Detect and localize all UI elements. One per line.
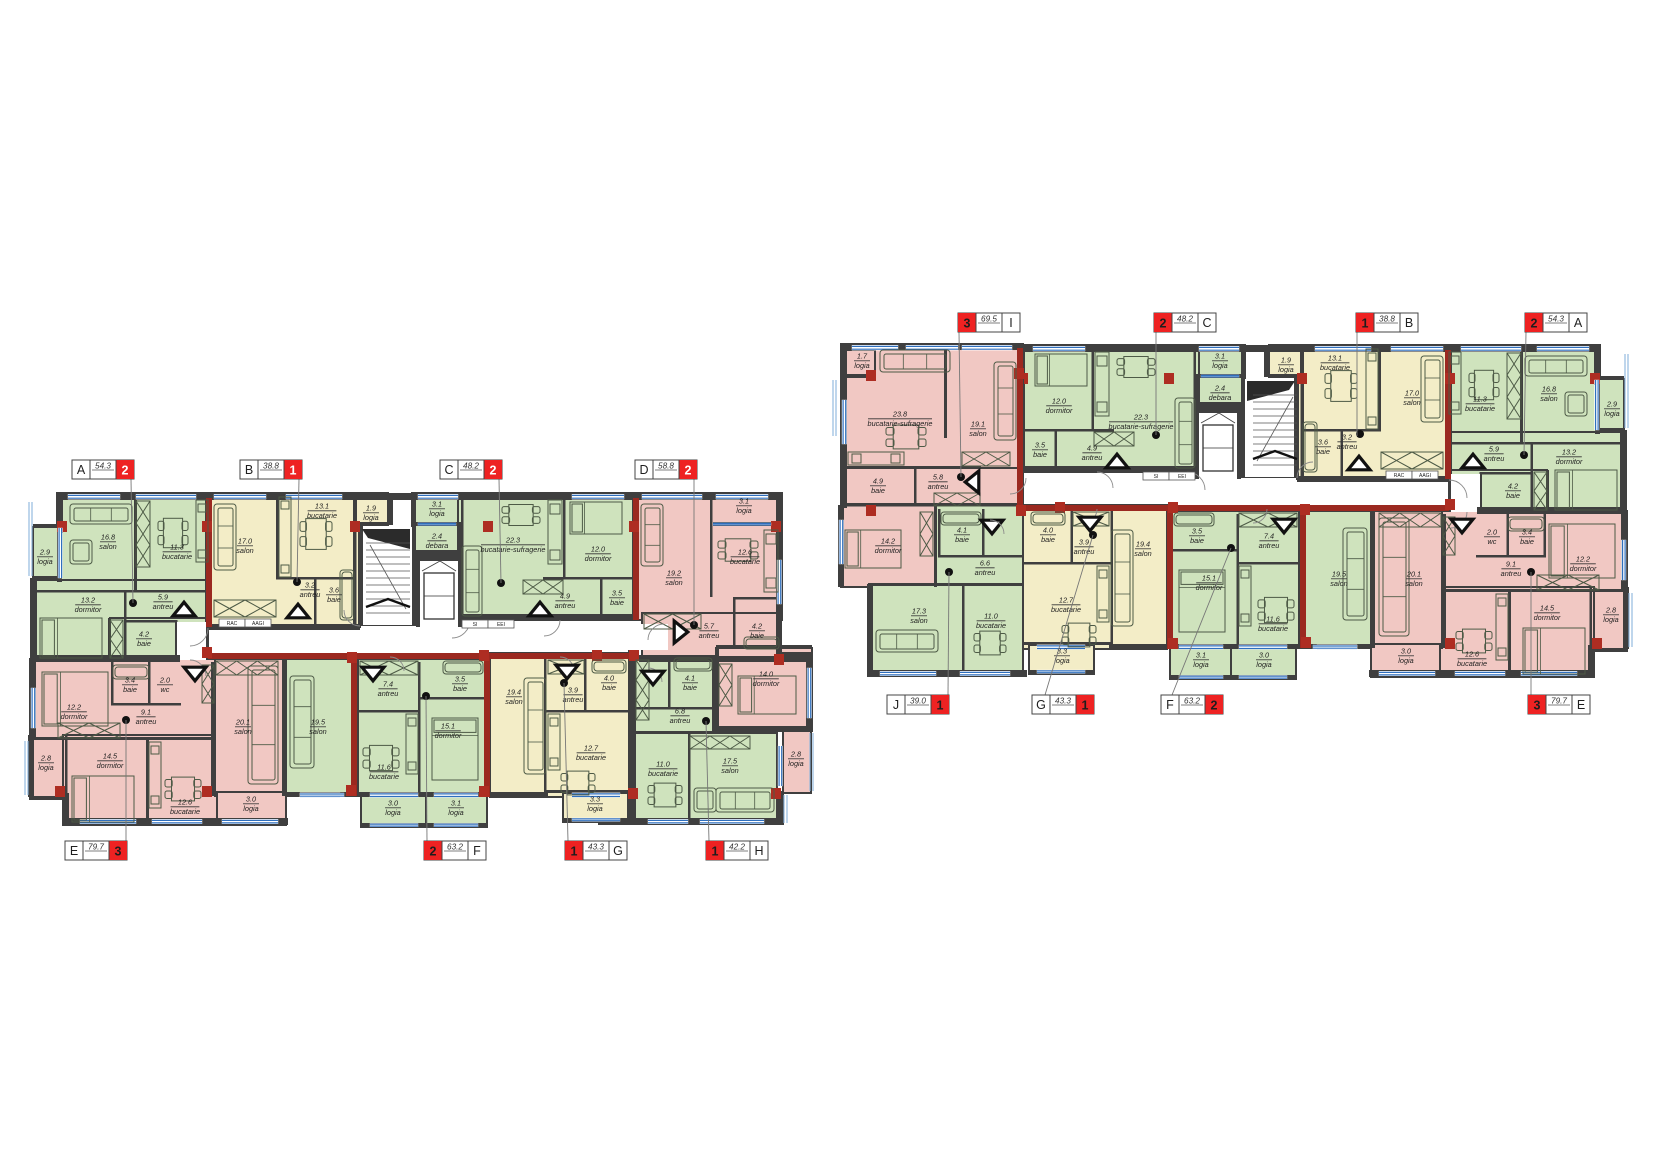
svg-text:11.3: 11.3 bbox=[1473, 395, 1487, 404]
svg-text:RAC: RAC bbox=[1394, 473, 1405, 479]
svg-text:3.0: 3.0 bbox=[388, 799, 398, 808]
svg-text:dormitor: dormitor bbox=[97, 761, 124, 770]
svg-text:3.4: 3.4 bbox=[1522, 528, 1532, 537]
svg-text:22.3: 22.3 bbox=[505, 536, 520, 545]
svg-text:79.7: 79.7 bbox=[1551, 697, 1567, 706]
svg-text:5.9: 5.9 bbox=[1489, 445, 1499, 454]
svg-text:bucatarie: bucatarie bbox=[1465, 404, 1495, 413]
svg-text:11.0: 11.0 bbox=[984, 612, 998, 621]
svg-text:13.2: 13.2 bbox=[1562, 448, 1576, 457]
svg-text:dormitor: dormitor bbox=[1046, 406, 1073, 415]
svg-text:19.4: 19.4 bbox=[1136, 540, 1150, 549]
svg-text:salon: salon bbox=[1134, 549, 1151, 558]
svg-text:logia: logia bbox=[1604, 409, 1619, 418]
svg-text:3.3: 3.3 bbox=[590, 795, 600, 804]
svg-text:salon: salon bbox=[1405, 579, 1422, 588]
svg-text:2: 2 bbox=[122, 464, 129, 478]
svg-text:baie: baie bbox=[871, 486, 885, 495]
svg-text:2: 2 bbox=[1211, 699, 1218, 713]
svg-text:4.9: 4.9 bbox=[560, 592, 570, 601]
svg-text:bucatarie-sufragerie: bucatarie-sufragerie bbox=[481, 545, 546, 554]
svg-text:baie: baie bbox=[1190, 536, 1204, 545]
svg-text:20.1: 20.1 bbox=[235, 718, 250, 727]
svg-text:12.6: 12.6 bbox=[738, 548, 753, 557]
svg-text:baie: baie bbox=[1041, 535, 1055, 544]
svg-text:23.8: 23.8 bbox=[892, 410, 908, 419]
svg-text:42.2: 42.2 bbox=[729, 843, 745, 852]
svg-text:13.1: 13.1 bbox=[315, 502, 329, 511]
svg-text:3.0: 3.0 bbox=[246, 795, 256, 804]
svg-text:antreu: antreu bbox=[136, 717, 157, 726]
svg-text:12.2: 12.2 bbox=[67, 703, 81, 712]
svg-text:4.0: 4.0 bbox=[1043, 526, 1053, 535]
svg-text:2.8: 2.8 bbox=[40, 754, 52, 763]
svg-text:salon: salon bbox=[665, 578, 682, 587]
svg-text:logia: logia bbox=[385, 808, 400, 817]
svg-text:antreu: antreu bbox=[1082, 453, 1103, 462]
svg-text:logia: logia bbox=[1278, 365, 1293, 374]
svg-text:16.8: 16.8 bbox=[101, 533, 116, 542]
svg-text:baie: baie bbox=[750, 631, 764, 640]
svg-text:G: G bbox=[613, 844, 623, 858]
svg-text:48.2: 48.2 bbox=[1177, 315, 1193, 324]
svg-text:7.4: 7.4 bbox=[383, 680, 393, 689]
svg-text:dormitor: dormitor bbox=[875, 546, 902, 555]
svg-text:14.5: 14.5 bbox=[1540, 604, 1555, 613]
svg-text:3.0: 3.0 bbox=[1401, 647, 1411, 656]
svg-text:logia: logia bbox=[587, 804, 602, 813]
svg-text:baie: baie bbox=[1033, 450, 1047, 459]
svg-text:3.1: 3.1 bbox=[1215, 352, 1225, 361]
svg-text:debara: debara bbox=[1209, 393, 1232, 402]
svg-text:bucatarie: bucatarie bbox=[1457, 659, 1487, 668]
svg-text:bucatarie: bucatarie bbox=[648, 769, 678, 778]
svg-text:antreu: antreu bbox=[555, 601, 576, 610]
svg-text:wc: wc bbox=[161, 685, 170, 694]
svg-text:dormitor: dormitor bbox=[1196, 583, 1223, 592]
svg-text:SI: SI bbox=[1154, 474, 1159, 480]
svg-text:F: F bbox=[1166, 698, 1174, 712]
svg-text:38.8: 38.8 bbox=[1379, 315, 1395, 324]
svg-text:1: 1 bbox=[571, 845, 578, 859]
svg-text:antreu: antreu bbox=[928, 482, 949, 491]
svg-text:3.1: 3.1 bbox=[739, 497, 749, 506]
svg-text:baie: baie bbox=[1520, 537, 1534, 546]
svg-text:baie: baie bbox=[610, 598, 624, 607]
svg-text:4.2: 4.2 bbox=[1508, 482, 1518, 491]
svg-text:3.2: 3.2 bbox=[1342, 433, 1352, 442]
svg-text:19.4: 19.4 bbox=[507, 688, 521, 697]
svg-text:3.1: 3.1 bbox=[432, 500, 442, 509]
svg-text:4.2: 4.2 bbox=[752, 622, 762, 631]
svg-text:F: F bbox=[473, 844, 481, 858]
svg-text:12.7: 12.7 bbox=[584, 744, 599, 753]
svg-text:antreu: antreu bbox=[563, 695, 584, 704]
svg-text:2.0: 2.0 bbox=[1486, 528, 1497, 537]
svg-text:4.1: 4.1 bbox=[957, 526, 967, 535]
svg-text:1.7: 1.7 bbox=[857, 352, 868, 361]
svg-text:dormitor: dormitor bbox=[61, 712, 88, 721]
svg-text:salon: salon bbox=[234, 727, 251, 736]
svg-text:salon: salon bbox=[505, 697, 522, 706]
svg-text:17.3: 17.3 bbox=[912, 607, 926, 616]
svg-text:3.0: 3.0 bbox=[1259, 651, 1269, 660]
svg-text:3.5: 3.5 bbox=[1192, 527, 1203, 536]
svg-text:1.9: 1.9 bbox=[366, 504, 376, 513]
svg-text:3.2: 3.2 bbox=[305, 581, 315, 590]
svg-text:4.9: 4.9 bbox=[873, 477, 883, 486]
svg-text:J: J bbox=[893, 698, 899, 712]
svg-text:2: 2 bbox=[685, 464, 692, 478]
svg-text:salon: salon bbox=[910, 616, 927, 625]
svg-text:63.2: 63.2 bbox=[1184, 697, 1200, 706]
svg-text:logia: logia bbox=[1603, 615, 1618, 624]
svg-text:19.5: 19.5 bbox=[1332, 570, 1347, 579]
svg-text:antreu: antreu bbox=[699, 631, 720, 640]
svg-text:EEI: EEI bbox=[497, 622, 505, 628]
svg-text:dormitor: dormitor bbox=[75, 605, 102, 614]
svg-text:baie: baie bbox=[1316, 447, 1330, 456]
svg-text:2: 2 bbox=[1531, 317, 1538, 331]
svg-text:baie: baie bbox=[1506, 491, 1520, 500]
svg-text:dormitor: dormitor bbox=[1534, 613, 1561, 622]
svg-text:A: A bbox=[77, 463, 86, 477]
svg-text:salon: salon bbox=[969, 429, 986, 438]
svg-text:12.6: 12.6 bbox=[178, 798, 193, 807]
svg-text:6.6: 6.6 bbox=[980, 559, 991, 568]
svg-text:salon: salon bbox=[236, 546, 253, 555]
svg-text:bucatarie: bucatarie bbox=[1051, 605, 1081, 614]
svg-text:logia: logia bbox=[788, 759, 803, 768]
svg-text:1: 1 bbox=[937, 699, 944, 713]
svg-text:dormitor: dormitor bbox=[1570, 564, 1597, 573]
svg-text:4.9: 4.9 bbox=[1087, 444, 1097, 453]
svg-text:15.1: 15.1 bbox=[441, 722, 455, 731]
svg-text:17.0: 17.0 bbox=[1405, 389, 1419, 398]
svg-text:antreu: antreu bbox=[300, 590, 321, 599]
svg-text:5.7: 5.7 bbox=[704, 622, 715, 631]
svg-text:5.9: 5.9 bbox=[158, 593, 168, 602]
svg-text:69.5: 69.5 bbox=[981, 315, 997, 324]
svg-text:17.5: 17.5 bbox=[723, 757, 738, 766]
svg-text:RAC: RAC bbox=[227, 621, 238, 627]
svg-text:A: A bbox=[1574, 316, 1583, 330]
svg-text:3.9: 3.9 bbox=[1079, 538, 1089, 547]
svg-text:54.3: 54.3 bbox=[1548, 315, 1564, 324]
svg-text:logia: logia bbox=[37, 557, 52, 566]
svg-text:2.8: 2.8 bbox=[1605, 606, 1617, 615]
svg-text:B: B bbox=[245, 463, 253, 477]
svg-text:E: E bbox=[1577, 698, 1585, 712]
svg-text:salon: salon bbox=[1403, 398, 1420, 407]
svg-text:logia: logia bbox=[429, 509, 444, 518]
svg-text:3.5: 3.5 bbox=[612, 589, 623, 598]
svg-text:4.0: 4.0 bbox=[604, 674, 614, 683]
svg-text:17.0: 17.0 bbox=[238, 537, 252, 546]
svg-text:salon: salon bbox=[721, 766, 738, 775]
svg-text:2: 2 bbox=[1160, 317, 1167, 331]
svg-text:4.1: 4.1 bbox=[685, 674, 695, 683]
svg-text:2.9: 2.9 bbox=[1606, 400, 1617, 409]
svg-text:2: 2 bbox=[430, 845, 437, 859]
svg-text:3.1: 3.1 bbox=[1196, 651, 1206, 660]
svg-text:11.6: 11.6 bbox=[377, 763, 392, 772]
svg-text:3: 3 bbox=[1534, 699, 1541, 713]
svg-text:12.2: 12.2 bbox=[1576, 555, 1590, 564]
svg-text:I: I bbox=[1009, 316, 1012, 330]
svg-text:79.7: 79.7 bbox=[88, 843, 104, 852]
svg-text:3.5: 3.5 bbox=[455, 675, 466, 684]
svg-text:logia: logia bbox=[363, 513, 378, 522]
svg-text:bucatarie: bucatarie bbox=[307, 511, 337, 520]
svg-text:logia: logia bbox=[243, 804, 258, 813]
svg-text:dormitor: dormitor bbox=[435, 731, 462, 740]
svg-text:14.2: 14.2 bbox=[881, 537, 895, 546]
svg-text:2.4: 2.4 bbox=[431, 532, 442, 541]
svg-text:baie: baie bbox=[602, 683, 616, 692]
svg-text:1: 1 bbox=[290, 464, 297, 478]
svg-text:2.0: 2.0 bbox=[159, 676, 170, 685]
svg-text:EEI: EEI bbox=[1178, 474, 1186, 480]
svg-text:bucatarie-sufragerie: bucatarie-sufragerie bbox=[868, 419, 933, 428]
svg-text:22.3: 22.3 bbox=[1133, 413, 1148, 422]
svg-text:bucatarie-sufragerie: bucatarie-sufragerie bbox=[1109, 422, 1174, 431]
svg-text:3: 3 bbox=[964, 317, 971, 331]
svg-text:3.6: 3.6 bbox=[329, 586, 340, 595]
svg-text:12.7: 12.7 bbox=[1059, 596, 1074, 605]
svg-text:43.3: 43.3 bbox=[588, 843, 604, 852]
svg-text:antreu: antreu bbox=[975, 568, 996, 577]
svg-text:debara: debara bbox=[426, 541, 449, 550]
svg-text:9.1: 9.1 bbox=[1506, 560, 1516, 569]
svg-text:logia: logia bbox=[1398, 656, 1413, 665]
svg-text:15.1: 15.1 bbox=[1202, 574, 1216, 583]
svg-text:1: 1 bbox=[1362, 317, 1369, 331]
svg-text:48.2: 48.2 bbox=[463, 462, 479, 471]
svg-text:bucatarie: bucatarie bbox=[1320, 363, 1350, 372]
svg-text:bucatarie: bucatarie bbox=[976, 621, 1006, 630]
svg-text:C: C bbox=[1202, 316, 1211, 330]
svg-text:16.8: 16.8 bbox=[1542, 385, 1557, 394]
svg-text:12.0: 12.0 bbox=[1052, 397, 1066, 406]
svg-text:6.8: 6.8 bbox=[675, 707, 686, 716]
svg-text:bucatarie: bucatarie bbox=[170, 807, 200, 816]
svg-text:antreu: antreu bbox=[1074, 547, 1095, 556]
svg-text:19.5: 19.5 bbox=[311, 718, 326, 727]
svg-text:wc: wc bbox=[1488, 537, 1497, 546]
svg-text:bucatarie: bucatarie bbox=[369, 772, 399, 781]
svg-text:antreu: antreu bbox=[1484, 454, 1505, 463]
svg-text:AAGI: AAGI bbox=[252, 621, 264, 627]
svg-text:antreu: antreu bbox=[1337, 442, 1358, 451]
svg-text:63.2: 63.2 bbox=[447, 843, 463, 852]
svg-text:19.1: 19.1 bbox=[971, 420, 985, 429]
svg-text:salon: salon bbox=[99, 542, 116, 551]
svg-text:1: 1 bbox=[712, 845, 719, 859]
svg-text:2.4: 2.4 bbox=[1214, 384, 1225, 393]
svg-text:bucatarie: bucatarie bbox=[1258, 624, 1288, 633]
svg-text:5.8: 5.8 bbox=[933, 473, 944, 482]
svg-text:E: E bbox=[70, 844, 78, 858]
svg-text:11.6: 11.6 bbox=[1266, 615, 1281, 624]
svg-text:antreu: antreu bbox=[153, 602, 174, 611]
svg-text:G: G bbox=[1036, 698, 1046, 712]
svg-text:bucatarie: bucatarie bbox=[576, 753, 606, 762]
svg-text:logia: logia bbox=[1212, 361, 1227, 370]
svg-text:9.1: 9.1 bbox=[141, 708, 151, 717]
svg-text:54.3: 54.3 bbox=[95, 462, 111, 471]
svg-text:43.3: 43.3 bbox=[1055, 697, 1071, 706]
svg-text:3.6: 3.6 bbox=[1318, 438, 1329, 447]
svg-text:logia: logia bbox=[38, 763, 53, 772]
svg-text:D: D bbox=[639, 463, 648, 477]
svg-text:antreu: antreu bbox=[1501, 569, 1522, 578]
svg-text:20.1: 20.1 bbox=[1406, 570, 1421, 579]
svg-text:bucatarie: bucatarie bbox=[730, 557, 760, 566]
svg-text:logia: logia bbox=[854, 361, 869, 370]
svg-text:baie: baie bbox=[955, 535, 969, 544]
svg-text:salon: salon bbox=[1330, 579, 1347, 588]
svg-text:logia: logia bbox=[1193, 660, 1208, 669]
svg-text:logia: logia bbox=[448, 808, 463, 817]
svg-text:bucatarie: bucatarie bbox=[162, 552, 192, 561]
svg-text:1.9: 1.9 bbox=[1281, 356, 1291, 365]
svg-text:baie: baie bbox=[137, 639, 151, 648]
svg-text:2.9: 2.9 bbox=[39, 548, 50, 557]
svg-text:dormitor: dormitor bbox=[753, 679, 780, 688]
svg-text:C: C bbox=[444, 463, 453, 477]
svg-text:14.5: 14.5 bbox=[103, 752, 118, 761]
svg-text:antreu: antreu bbox=[1259, 541, 1280, 550]
svg-text:logia: logia bbox=[736, 506, 751, 515]
svg-text:B: B bbox=[1405, 316, 1413, 330]
svg-text:39.0: 39.0 bbox=[910, 697, 926, 706]
svg-text:2: 2 bbox=[490, 464, 497, 478]
svg-text:3.1: 3.1 bbox=[451, 799, 461, 808]
svg-text:12.0: 12.0 bbox=[591, 545, 605, 554]
svg-text:salon: salon bbox=[309, 727, 326, 736]
svg-text:baie: baie bbox=[327, 595, 341, 604]
svg-text:1: 1 bbox=[1082, 699, 1089, 713]
svg-text:dormitor: dormitor bbox=[1556, 457, 1583, 466]
svg-text:logia: logia bbox=[1256, 660, 1271, 669]
svg-text:3.5: 3.5 bbox=[1035, 441, 1046, 450]
svg-text:19.2: 19.2 bbox=[667, 569, 681, 578]
svg-text:58.8: 58.8 bbox=[658, 462, 674, 471]
svg-text:13.2: 13.2 bbox=[81, 596, 95, 605]
svg-text:7.4: 7.4 bbox=[1264, 532, 1274, 541]
svg-text:antreu: antreu bbox=[670, 716, 691, 725]
svg-text:4.2: 4.2 bbox=[139, 630, 149, 639]
svg-text:14.0: 14.0 bbox=[759, 670, 773, 679]
svg-text:13.1: 13.1 bbox=[1328, 354, 1342, 363]
svg-text:antreu: antreu bbox=[378, 689, 399, 698]
svg-text:12.6: 12.6 bbox=[1465, 650, 1480, 659]
svg-text:3: 3 bbox=[115, 845, 122, 859]
svg-text:38.8: 38.8 bbox=[263, 462, 279, 471]
svg-text:AAGI: AAGI bbox=[1419, 473, 1431, 479]
svg-text:3.4: 3.4 bbox=[125, 676, 135, 685]
svg-text:11.0: 11.0 bbox=[656, 760, 670, 769]
svg-text:H: H bbox=[754, 844, 763, 858]
svg-text:baie: baie bbox=[453, 684, 467, 693]
svg-text:3.9: 3.9 bbox=[568, 686, 578, 695]
svg-text:dormitor: dormitor bbox=[585, 554, 612, 563]
svg-text:baie: baie bbox=[683, 683, 697, 692]
svg-text:baie: baie bbox=[123, 685, 137, 694]
svg-text:salon: salon bbox=[1540, 394, 1557, 403]
svg-text:2.8: 2.8 bbox=[790, 750, 802, 759]
svg-text:11.3: 11.3 bbox=[170, 543, 184, 552]
svg-text:SI: SI bbox=[473, 622, 478, 628]
